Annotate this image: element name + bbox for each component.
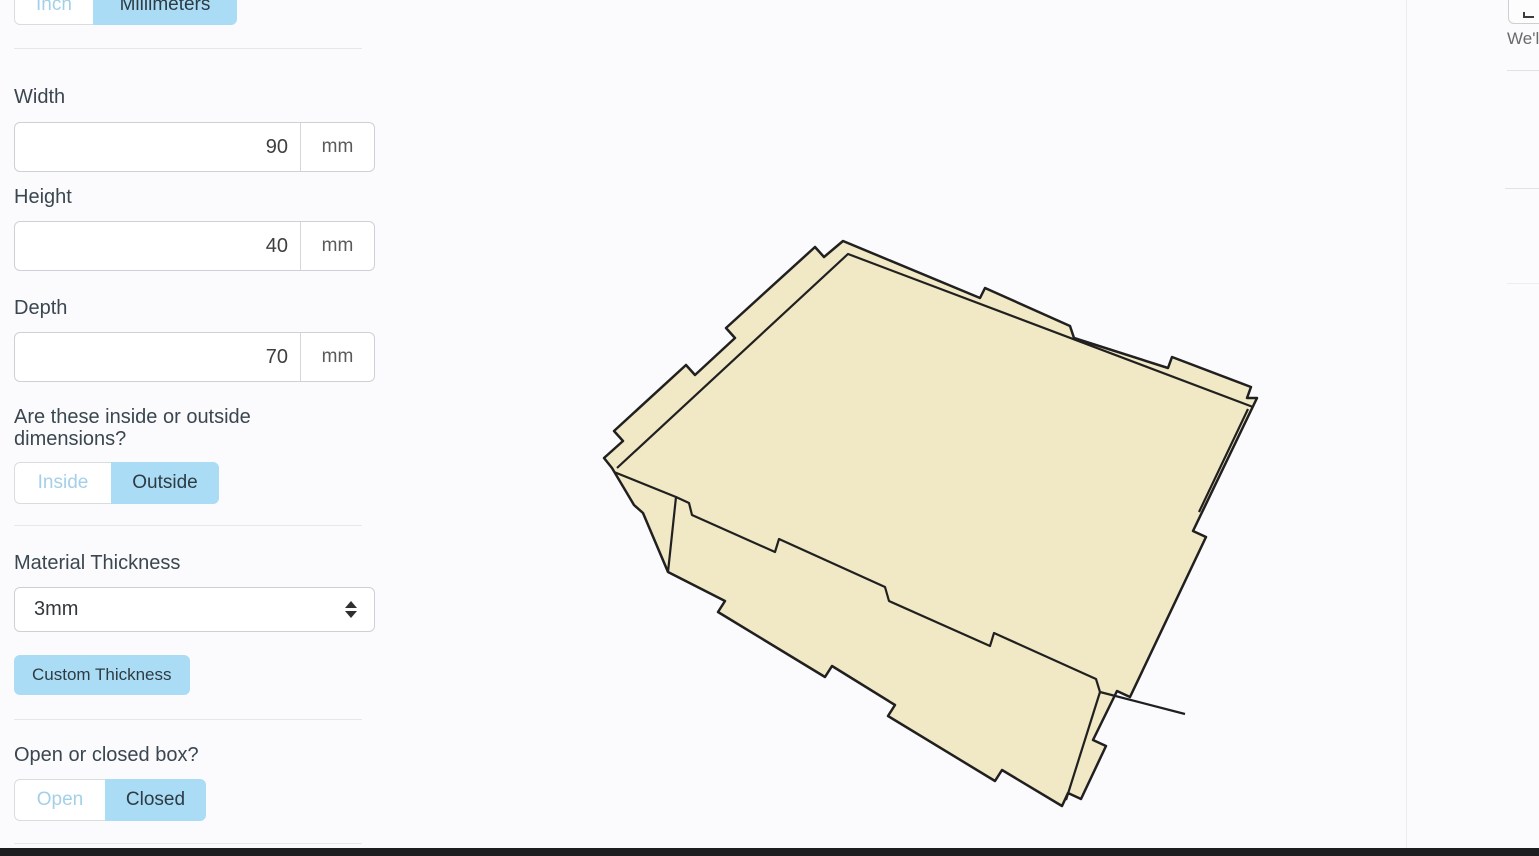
bottom-bar bbox=[0, 848, 1539, 856]
clipped-right-text: We'l bbox=[1507, 29, 1539, 49]
app-window: Inch Millimeters Width mm Height mm Dept… bbox=[0, 0, 1539, 856]
preview-canvas[interactable] bbox=[376, 0, 1406, 848]
clipped-top-right-button[interactable] bbox=[1508, 0, 1539, 24]
divider bbox=[1505, 188, 1539, 189]
box-3d-render bbox=[0, 0, 1539, 848]
divider bbox=[1507, 283, 1539, 284]
divider bbox=[1507, 70, 1539, 71]
box-silhouette bbox=[604, 241, 1257, 806]
panel-boundary-line bbox=[1406, 0, 1407, 848]
clipped-icon bbox=[1523, 12, 1534, 18]
